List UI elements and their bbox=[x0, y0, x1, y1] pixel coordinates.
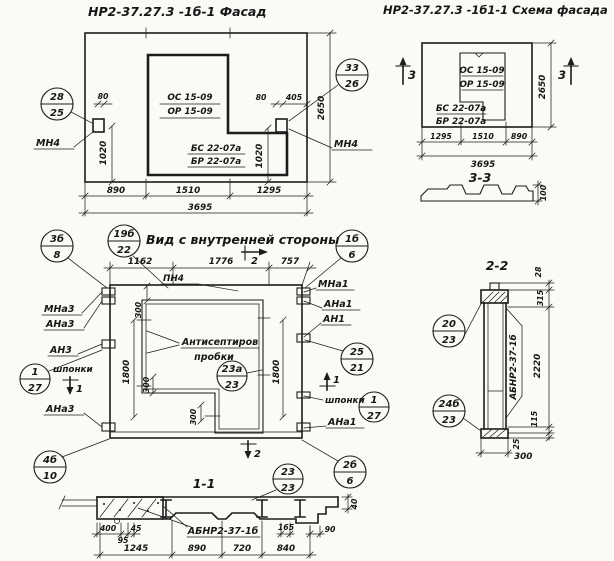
svg-text:1: 1 bbox=[76, 384, 83, 395]
svg-text:23: 23 bbox=[225, 380, 239, 391]
svg-text:1: 1 bbox=[371, 395, 378, 406]
scheme-sill-mark-1: БС 22-07а bbox=[436, 104, 486, 114]
svg-text:80: 80 bbox=[98, 92, 109, 101]
svg-text:АНа3: АНа3 bbox=[45, 404, 75, 415]
dim-scheme-bottom: 1295 1510 890 3695 bbox=[417, 122, 537, 170]
svg-text:20: 20 bbox=[442, 319, 456, 330]
svg-text:МНа3: МНа3 bbox=[44, 304, 75, 315]
callout-2b-6: 2б 6 bbox=[302, 440, 366, 488]
svg-text:2220: 2220 bbox=[533, 354, 543, 378]
dim-s22-300: 300 bbox=[476, 438, 532, 462]
s22-panel-mark: АБНР2-37-1б bbox=[508, 334, 519, 400]
label-an3: АН3 bbox=[48, 344, 102, 356]
facade-sill-mark-1: БС 22-07а bbox=[191, 144, 241, 154]
dim-1800-group: 1800 1800 bbox=[122, 317, 286, 420]
dim-100-s33: 100 bbox=[533, 181, 548, 205]
section-1-mark-right: 1 bbox=[320, 372, 340, 390]
scheme-view: НР2-37.27.3 -1б1-1 Схема фасада ОС 15-09… bbox=[383, 3, 608, 205]
svg-text:25: 25 bbox=[50, 108, 64, 119]
s22-panel-body bbox=[484, 303, 506, 429]
svg-text:АНа3: АНа3 bbox=[45, 319, 75, 330]
facade-window-mark-2: ОР 15-09 bbox=[167, 107, 212, 117]
svg-text:840: 840 bbox=[277, 544, 295, 554]
dim-80-405-right: 80 405 bbox=[256, 93, 310, 107]
svg-text:1295: 1295 bbox=[430, 132, 452, 141]
label-mna1: МНа1 bbox=[304, 279, 354, 292]
callout-33-26: 33 26 bbox=[289, 59, 368, 121]
svg-text:890: 890 bbox=[107, 186, 125, 196]
svg-text:2: 2 bbox=[251, 256, 258, 267]
facade-title: НР2-37.27.3 -1б-1 Фасад bbox=[88, 4, 266, 19]
svg-text:1800: 1800 bbox=[122, 360, 132, 384]
s11-bottom-profile bbox=[163, 497, 338, 523]
section-3-3-title: 3-3 bbox=[469, 170, 492, 185]
callout-1-27-right: 1 27 bbox=[359, 392, 389, 422]
svg-text:40: 40 bbox=[350, 498, 359, 509]
callout-23a-23: 23а 23 bbox=[217, 361, 262, 391]
svg-text:300: 300 bbox=[189, 408, 198, 425]
svg-text:АН1: АН1 bbox=[322, 314, 345, 325]
svg-text:1510: 1510 bbox=[176, 186, 200, 196]
svg-text:1162: 1162 bbox=[128, 257, 152, 267]
svg-text:80: 80 bbox=[256, 93, 267, 102]
svg-text:2: 2 bbox=[254, 449, 261, 460]
svg-text:23а: 23а bbox=[222, 364, 243, 375]
svg-text:1295: 1295 bbox=[257, 186, 281, 196]
drawing-canvas: НР2-37.27.3 -1б-1 Фасад ОС 15-09 ОР 15-0… bbox=[0, 0, 614, 561]
svg-text:МН4: МН4 bbox=[334, 139, 358, 150]
section-2-mark-bottom: 2 bbox=[241, 441, 261, 460]
drawing-sheet: НР2-37.27.3 -1б-1 Фасад ОС 15-09 ОР 15-0… bbox=[0, 0, 614, 561]
svg-text:МНа1: МНа1 bbox=[318, 279, 348, 290]
svg-text:3: 3 bbox=[558, 68, 566, 82]
svg-text:АНа1: АНа1 bbox=[327, 417, 356, 428]
svg-text:8: 8 bbox=[54, 250, 61, 261]
s11-window-box-hatch bbox=[100, 499, 159, 517]
svg-text:23: 23 bbox=[281, 467, 295, 478]
callout-25-21: 25 21 bbox=[305, 340, 373, 375]
svg-text:22: 22 bbox=[117, 245, 131, 256]
svg-text:3б: 3б bbox=[50, 233, 64, 245]
svg-text:АН3: АН3 bbox=[49, 345, 72, 356]
facade-window-mark-1: ОС 15-09 bbox=[167, 93, 212, 103]
svg-text:27: 27 bbox=[367, 411, 381, 422]
svg-text:23: 23 bbox=[281, 483, 295, 494]
callout-3b-8: 3б 8 bbox=[41, 230, 107, 288]
s22-bottom-cap-hatch bbox=[483, 430, 505, 437]
svg-text:165: 165 bbox=[278, 523, 295, 532]
s22-label-band: АБНР2-37-1б bbox=[506, 308, 522, 418]
svg-text:ПН4: ПН4 bbox=[163, 274, 184, 284]
section-1-1-title: 1-1 bbox=[193, 476, 216, 491]
s22-lifting-loop bbox=[490, 283, 499, 290]
svg-text:1б: 1б bbox=[345, 233, 359, 245]
section-1-mark-left: 1 bbox=[63, 377, 83, 395]
section-2-2-title: 2-2 bbox=[486, 258, 509, 273]
svg-text:1: 1 bbox=[32, 367, 39, 378]
inner-view: Вид с внутренней стороны 3б 8 19б 22 1б … bbox=[20, 225, 389, 500]
dim-2650-facade: 2650 bbox=[307, 30, 336, 185]
svg-text:АНа1: АНа1 bbox=[323, 299, 352, 310]
svg-text:1020: 1020 bbox=[255, 144, 265, 168]
svg-text:28: 28 bbox=[534, 266, 543, 277]
svg-text:2650: 2650 bbox=[317, 96, 327, 120]
dim-80-left: 80 bbox=[94, 92, 112, 107]
section-3-3-profile bbox=[421, 185, 533, 201]
s11-panel-mark-label: АБНР2-37-1б bbox=[138, 506, 260, 537]
label-pn4: ПН4 bbox=[161, 274, 238, 291]
label-shponki-left: шпонки bbox=[53, 365, 93, 375]
svg-text:1800: 1800 bbox=[272, 360, 282, 384]
svg-text:6: 6 bbox=[349, 250, 356, 261]
callout-4b-10: 4б 10 bbox=[34, 439, 109, 483]
svg-text:300: 300 bbox=[142, 376, 151, 393]
svg-text:МН4: МН4 bbox=[36, 138, 60, 149]
label-mn4-right: МН4 bbox=[289, 129, 372, 150]
svg-text:4б: 4б bbox=[42, 454, 57, 466]
svg-text:115: 115 bbox=[530, 410, 539, 427]
section-1-1-view: 1-1 АБНР2-37-1б bbox=[59, 476, 359, 558]
svg-text:315: 315 bbox=[536, 289, 545, 306]
scheme-window-mark-1: ОС 15-09 bbox=[459, 66, 504, 76]
facade-sill-mark-2: БР 22-07а bbox=[191, 157, 241, 167]
svg-text:1510: 1510 bbox=[472, 132, 494, 141]
svg-text:21: 21 bbox=[350, 363, 364, 374]
plug-outline-outer bbox=[142, 300, 263, 433]
svg-text:10: 10 bbox=[43, 471, 57, 482]
svg-text:24б: 24б bbox=[439, 398, 460, 410]
callout-20-23: 20 23 bbox=[433, 302, 482, 347]
svg-text:1: 1 bbox=[333, 375, 340, 386]
svg-text:300: 300 bbox=[134, 301, 143, 318]
s22-top-cap-hatch bbox=[483, 292, 508, 302]
svg-text:45: 45 bbox=[131, 524, 142, 533]
svg-text:2б: 2б bbox=[343, 459, 357, 471]
svg-text:33: 33 bbox=[345, 63, 359, 74]
label-ana1-bottom: АНа1 bbox=[304, 417, 364, 428]
label-ana3-bottom: АНа3 bbox=[44, 404, 102, 427]
svg-text:25: 25 bbox=[512, 438, 521, 449]
scheme-title: НР2-37.27.3 -1б1-1 Схема фасада bbox=[383, 3, 608, 17]
label-mna3: МНа3 bbox=[42, 292, 102, 315]
plug-ticks bbox=[137, 318, 270, 416]
svg-text:1776: 1776 bbox=[209, 257, 233, 267]
scheme-window-mark-2: ОР 15-09 bbox=[459, 80, 504, 90]
svg-text:100: 100 bbox=[539, 184, 548, 201]
svg-text:757: 757 bbox=[281, 257, 300, 267]
svg-text:1020: 1020 bbox=[99, 141, 109, 165]
facade-view: НР2-37.27.3 -1б-1 Фасад ОС 15-09 ОР 15-0… bbox=[34, 4, 372, 216]
svg-text:720: 720 bbox=[233, 544, 251, 554]
callout-23-23: 23 23 bbox=[252, 464, 303, 500]
label-an1: АН1 bbox=[304, 314, 351, 337]
svg-text:Антисептиров: Антисептиров bbox=[181, 337, 258, 348]
svg-text:АБНР2-37-1б: АБНР2-37-1б bbox=[187, 526, 259, 537]
svg-text:890: 890 bbox=[188, 544, 206, 554]
callout-24b-23: 24б 23 bbox=[433, 395, 481, 431]
dim-inner-top: 1162 1776 757 bbox=[104, 257, 316, 285]
section-3-mark-left: 3 bbox=[396, 57, 416, 84]
s11-left-cut-lines bbox=[59, 496, 97, 509]
svg-text:3: 3 bbox=[408, 68, 416, 82]
label-ana1-top: АНа1 bbox=[304, 299, 360, 310]
mounting-loop-left bbox=[93, 119, 104, 132]
note-antiseptic: Антисептиров пробки bbox=[147, 331, 259, 363]
svg-text:19б: 19б bbox=[114, 228, 135, 240]
dim-2650-scheme: 2650 bbox=[532, 40, 556, 130]
inner-title: Вид с внутренней стороны bbox=[146, 232, 339, 247]
section-2-mark-top: 2 bbox=[242, 246, 268, 267]
mounting-loop-right bbox=[276, 119, 287, 132]
svg-text:405: 405 bbox=[286, 93, 303, 102]
svg-text:3695: 3695 bbox=[188, 203, 212, 213]
svg-text:1245: 1245 bbox=[124, 544, 148, 554]
svg-text:400: 400 bbox=[100, 524, 117, 533]
svg-text:6: 6 bbox=[347, 476, 354, 487]
scheme-top-notch bbox=[475, 53, 483, 57]
svg-text:2650: 2650 bbox=[538, 75, 548, 99]
svg-text:3695: 3695 bbox=[471, 160, 495, 170]
svg-text:890: 890 bbox=[511, 132, 528, 141]
section-3-mark-right: 3 bbox=[558, 57, 578, 84]
dim-facade-bottom: 890 1510 1295 3695 bbox=[79, 179, 313, 216]
svg-text:23: 23 bbox=[442, 415, 456, 426]
svg-text:25: 25 bbox=[350, 347, 364, 358]
svg-text:300: 300 bbox=[514, 452, 532, 462]
svg-text:27: 27 bbox=[28, 383, 42, 394]
section-2-2-view: 2-2 АБНР2-37-1б bbox=[433, 258, 554, 462]
svg-text:26: 26 bbox=[345, 79, 359, 90]
svg-text:90: 90 bbox=[325, 525, 336, 534]
svg-text:28: 28 bbox=[50, 92, 64, 103]
s11-anchor-symbols bbox=[161, 500, 305, 517]
svg-text:23: 23 bbox=[442, 335, 456, 346]
